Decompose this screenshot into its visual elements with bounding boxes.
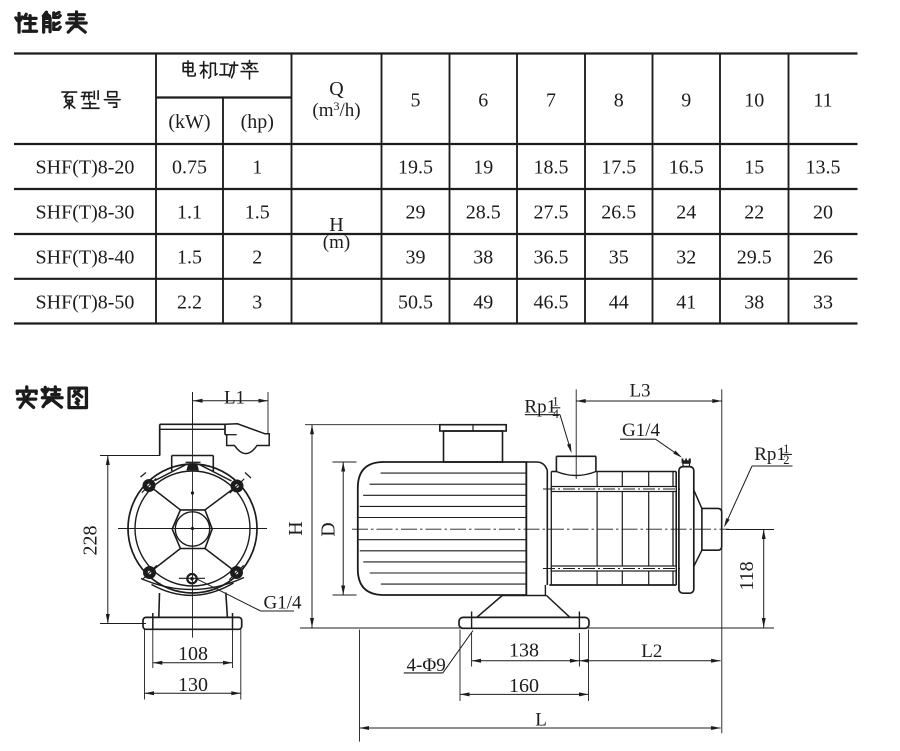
svg-text:(kW): (kW) bbox=[168, 111, 210, 133]
svg-text:3: 3 bbox=[252, 291, 262, 313]
svg-text:1.5: 1.5 bbox=[245, 202, 270, 224]
svg-text:8: 8 bbox=[614, 90, 624, 112]
svg-text:130: 130 bbox=[178, 674, 208, 696]
svg-text:1: 1 bbox=[252, 157, 262, 179]
svg-text:6: 6 bbox=[478, 90, 488, 112]
svg-text:4: 4 bbox=[553, 407, 560, 421]
svg-text:29: 29 bbox=[406, 202, 426, 224]
svg-text:G1/4: G1/4 bbox=[622, 420, 661, 441]
svg-text:2: 2 bbox=[783, 453, 789, 467]
svg-text:17.5: 17.5 bbox=[601, 157, 636, 179]
svg-text:44: 44 bbox=[609, 291, 629, 313]
svg-text:28.5: 28.5 bbox=[466, 202, 501, 224]
svg-text:228: 228 bbox=[80, 526, 102, 556]
svg-text:108: 108 bbox=[178, 643, 208, 665]
svg-text:2: 2 bbox=[252, 246, 262, 268]
svg-text:27.5: 27.5 bbox=[534, 202, 569, 224]
svg-text:29.5: 29.5 bbox=[737, 246, 772, 268]
svg-text:19.5: 19.5 bbox=[398, 157, 433, 179]
svg-text:L1: L1 bbox=[224, 388, 245, 409]
svg-text:22: 22 bbox=[744, 202, 764, 224]
svg-text:38: 38 bbox=[744, 291, 764, 313]
svg-text:SHF(T)8-30: SHF(T)8-30 bbox=[36, 202, 135, 224]
svg-text:138: 138 bbox=[509, 640, 539, 662]
svg-text:L2: L2 bbox=[641, 641, 662, 662]
svg-text:SHF(T)8-40: SHF(T)8-40 bbox=[36, 246, 135, 268]
svg-text:0.75: 0.75 bbox=[172, 157, 207, 179]
svg-text:19: 19 bbox=[473, 157, 493, 179]
svg-text:20: 20 bbox=[813, 202, 833, 224]
svg-text:41: 41 bbox=[676, 291, 696, 313]
svg-text:9: 9 bbox=[681, 90, 691, 112]
svg-text:24: 24 bbox=[676, 202, 696, 224]
svg-text:36.5: 36.5 bbox=[534, 246, 569, 268]
svg-text:26.5: 26.5 bbox=[601, 202, 636, 224]
svg-text:(m): (m) bbox=[323, 232, 350, 253]
svg-text:16.5: 16.5 bbox=[669, 157, 704, 179]
svg-text:10: 10 bbox=[744, 90, 764, 112]
svg-text:26: 26 bbox=[813, 246, 833, 268]
svg-text:32: 32 bbox=[676, 246, 696, 268]
svg-text:D: D bbox=[318, 522, 340, 536]
svg-text:L3: L3 bbox=[629, 381, 650, 402]
svg-text:5: 5 bbox=[411, 90, 421, 112]
svg-text:49: 49 bbox=[473, 291, 493, 313]
svg-text:Q: Q bbox=[329, 78, 344, 100]
svg-text:1.1: 1.1 bbox=[177, 202, 202, 224]
svg-text:SHF(T)8-50: SHF(T)8-50 bbox=[36, 291, 135, 313]
svg-text:13.5: 13.5 bbox=[806, 157, 841, 179]
svg-text:50.5: 50.5 bbox=[398, 291, 433, 313]
svg-text:G1/4: G1/4 bbox=[264, 593, 303, 614]
svg-text:(m3/h): (m3/h) bbox=[312, 99, 360, 121]
svg-text:H: H bbox=[285, 521, 307, 535]
svg-text:46.5: 46.5 bbox=[534, 291, 569, 313]
svg-text:33: 33 bbox=[813, 291, 833, 313]
svg-text:(hp): (hp) bbox=[241, 111, 274, 133]
svg-text:1.5: 1.5 bbox=[177, 246, 202, 268]
svg-text:7: 7 bbox=[546, 90, 556, 112]
svg-text:SHF(T)8-20: SHF(T)8-20 bbox=[36, 157, 135, 179]
svg-text:11: 11 bbox=[813, 90, 832, 112]
svg-text:35: 35 bbox=[609, 246, 629, 268]
svg-text:160: 160 bbox=[509, 675, 539, 697]
svg-text:15: 15 bbox=[744, 157, 764, 179]
svg-text:4-Φ9: 4-Φ9 bbox=[407, 655, 446, 676]
svg-text:38: 38 bbox=[473, 246, 493, 268]
svg-text:118: 118 bbox=[736, 561, 758, 590]
svg-text:39: 39 bbox=[406, 246, 426, 268]
svg-text:2.2: 2.2 bbox=[177, 291, 202, 313]
svg-text:18.5: 18.5 bbox=[534, 157, 569, 179]
svg-text:Rp1: Rp1 bbox=[524, 397, 556, 418]
svg-text:L: L bbox=[535, 710, 547, 731]
